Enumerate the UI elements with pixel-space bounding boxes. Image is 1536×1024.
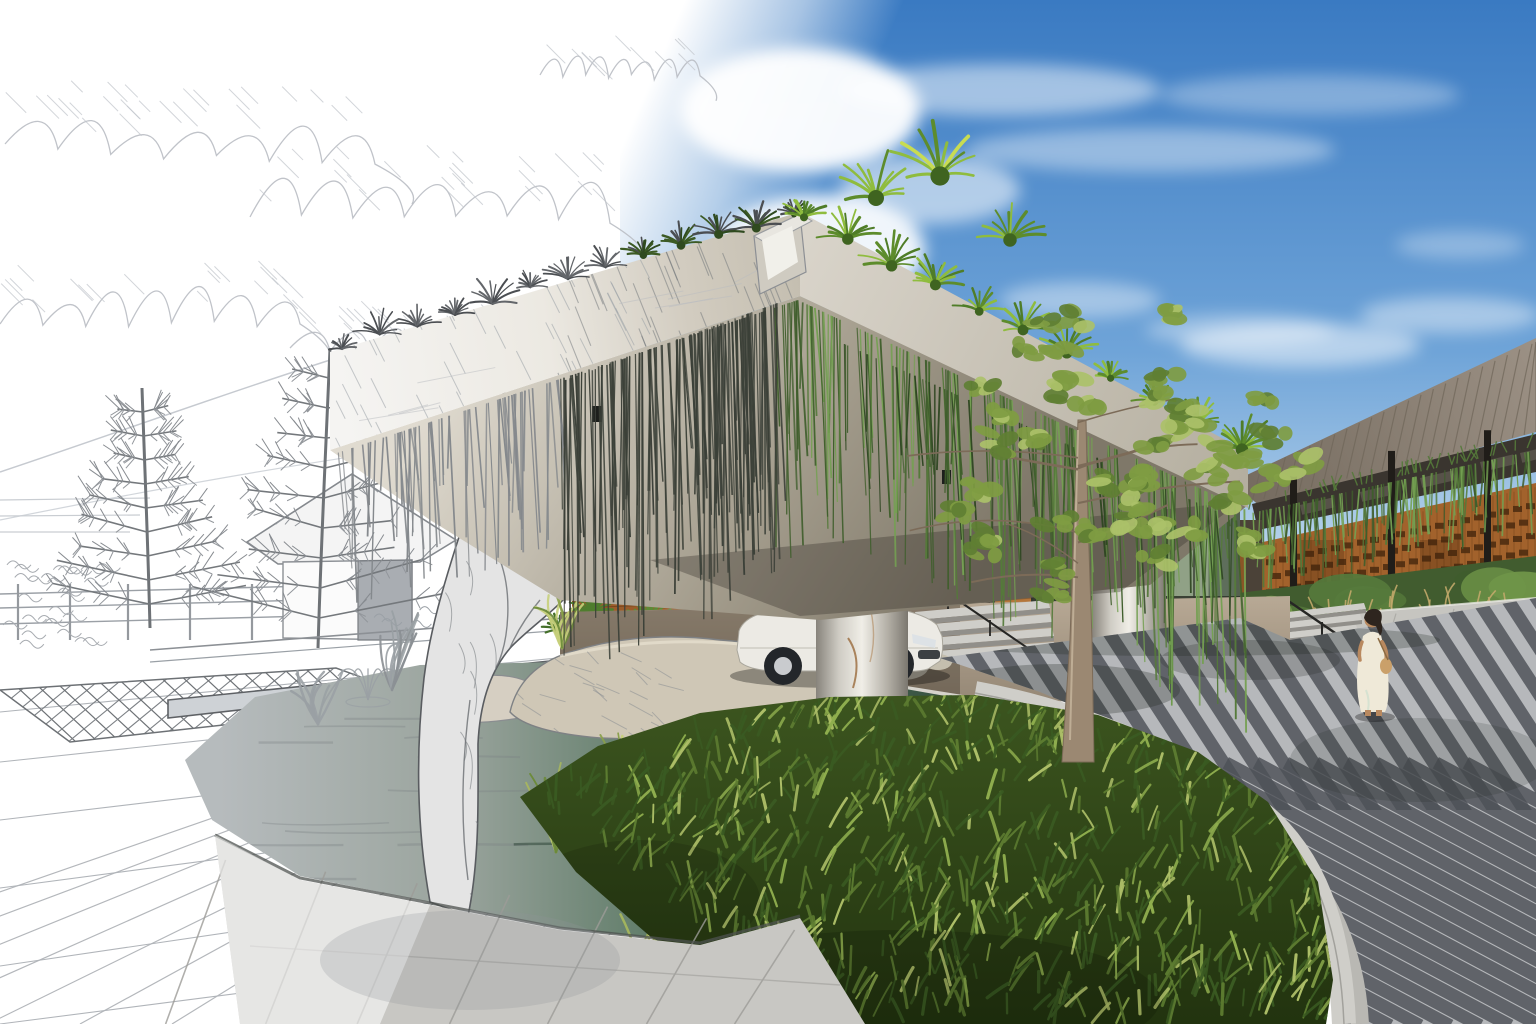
scene-svg: blue sky with clouds pencil-hatched clou… (0, 0, 1536, 1024)
figure-shadow (1355, 712, 1395, 722)
artwork-canvas: blue sky with clouds pencil-hatched clou… (0, 0, 1536, 1024)
car-grille (918, 650, 940, 659)
figure-bag (1380, 658, 1392, 674)
